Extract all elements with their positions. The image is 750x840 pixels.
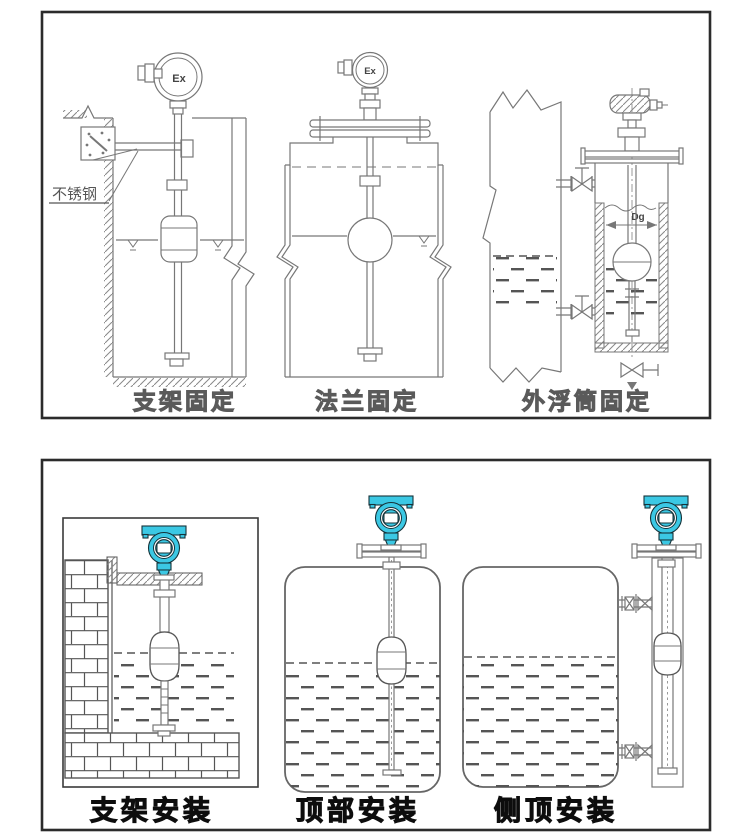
bottom-panel: 支架安装 顶部安装	[42, 460, 710, 830]
stem-end-tip	[364, 354, 376, 361]
neck-fitting	[365, 94, 375, 100]
chamber-bottom-hatched	[595, 343, 668, 352]
flange-end-tab	[679, 148, 683, 164]
neck-fitting	[360, 100, 380, 108]
tank-wall-right-outer	[238, 118, 254, 377]
diameter-label: Dg	[631, 212, 644, 223]
figure-top-install: 顶部安装	[285, 496, 440, 826]
flange-end-tab	[581, 148, 585, 164]
neck-fitting	[362, 88, 378, 94]
water	[463, 662, 618, 787]
chamber-flange-top	[584, 151, 680, 157]
tank-torn-bottom	[490, 368, 561, 382]
chamber-wall-hatched-right	[659, 203, 668, 348]
installation-diagram: Ex 不锈钢 支架固定 Ex	[0, 0, 750, 840]
cable-gland	[344, 60, 352, 75]
float	[654, 633, 681, 675]
bracket-arm	[115, 143, 181, 150]
cable-gland	[145, 64, 154, 82]
stem-end-tip	[158, 731, 170, 736]
flange-end-tab	[696, 544, 701, 558]
neck-nut	[618, 128, 645, 137]
brick-floor	[65, 733, 239, 778]
isolation-valve-bottom	[556, 296, 595, 319]
stem-connector	[360, 176, 380, 186]
figure-caption: 支架安装	[90, 796, 214, 826]
figure-bracket-fixed: Ex 不锈钢 支架固定	[49, 53, 254, 414]
tank-wall-left	[277, 165, 298, 377]
level-symbol	[213, 240, 223, 250]
tank-wall-right-inner	[224, 118, 240, 377]
figure-flange-fixed: Ex 法兰固定	[277, 53, 451, 415]
cable-gland	[657, 102, 662, 108]
junction-box-knob	[640, 89, 649, 96]
tank-shoulders	[285, 137, 443, 165]
stem	[160, 578, 169, 632]
figure-bracket-install: 支架安装	[63, 518, 258, 826]
material-label: 不锈钢	[52, 186, 97, 203]
bracket-upright	[107, 557, 117, 583]
figure-side-top-install: 侧顶安装	[463, 496, 701, 826]
float-ball	[348, 218, 392, 262]
diagram-canvas: Ex 不锈钢 支架固定 Ex	[0, 0, 750, 840]
figure-caption: 外浮筒固定	[522, 388, 652, 414]
figure-caption: 法兰固定	[315, 388, 419, 414]
tank-water	[493, 256, 557, 310]
figure-caption: 侧顶安装	[494, 796, 618, 826]
tank-wall-section	[483, 90, 561, 372]
float	[377, 637, 406, 684]
flange-end-tab	[421, 544, 426, 558]
chamber-wall-hatched-left	[595, 203, 604, 348]
float	[150, 632, 179, 681]
tank-wall-right	[430, 165, 451, 377]
stem-lower	[161, 681, 168, 725]
neck-fitting	[364, 108, 376, 120]
flange-plate-top	[310, 120, 430, 127]
isolation-valve-top	[556, 168, 595, 191]
water	[285, 668, 440, 792]
top-panel: Ex 不锈钢 支架固定 Ex	[42, 12, 710, 418]
stem-collar	[154, 590, 175, 597]
dimension-arrow-left	[606, 221, 616, 229]
stem-end-stop	[658, 768, 677, 774]
cable-gland	[154, 69, 162, 78]
chamber-liquid-surface	[605, 205, 656, 211]
neck-fitting	[623, 113, 641, 120]
brick-wall	[65, 560, 108, 733]
flange-plate-bottom	[635, 552, 698, 557]
figure-external-chamber-fixed: Dg	[483, 88, 683, 414]
cable-gland	[138, 66, 145, 80]
stem-end-tip	[170, 359, 183, 366]
neck-fitting	[628, 120, 636, 128]
level-symbol	[128, 240, 138, 250]
floor-hatch	[113, 378, 246, 387]
flange-plate-bottom	[360, 552, 423, 557]
level-transmitter	[369, 496, 413, 550]
level-transmitter	[644, 496, 688, 550]
level-symbol	[419, 236, 429, 246]
neck-fitting	[170, 101, 186, 108]
junction-box-cap	[610, 95, 650, 113]
chamber-flange-bottom	[584, 159, 680, 163]
flange-end-tab	[632, 544, 637, 558]
rod-collar	[383, 562, 400, 569]
stem-connector	[167, 180, 187, 190]
rod-collar	[658, 560, 675, 567]
ceiling-line	[63, 106, 246, 118]
dimension-arrow-right	[647, 221, 657, 229]
drain-valve	[621, 363, 658, 390]
ex-label: Ex	[172, 73, 186, 85]
neck-fitting	[173, 108, 183, 114]
stem-clamp	[181, 140, 193, 157]
figure-caption: 顶部安装	[296, 795, 420, 826]
neck-block	[625, 137, 639, 151]
connection-valve-bottom	[618, 742, 652, 761]
ex-label: Ex	[364, 66, 376, 77]
cable-gland	[650, 100, 657, 110]
stem-end-stop	[153, 725, 175, 731]
cable-gland	[338, 62, 344, 73]
stem-end-stop	[165, 353, 189, 359]
flange-end-tab	[357, 544, 362, 558]
figure-caption: 支架固定	[132, 388, 237, 414]
stem-end-stop	[358, 348, 382, 354]
stem-end-stop	[626, 330, 639, 336]
flange-plate-bottom	[310, 130, 430, 137]
stem-end-stop	[383, 770, 401, 775]
float	[161, 216, 197, 262]
connection-valve-top	[618, 594, 652, 613]
